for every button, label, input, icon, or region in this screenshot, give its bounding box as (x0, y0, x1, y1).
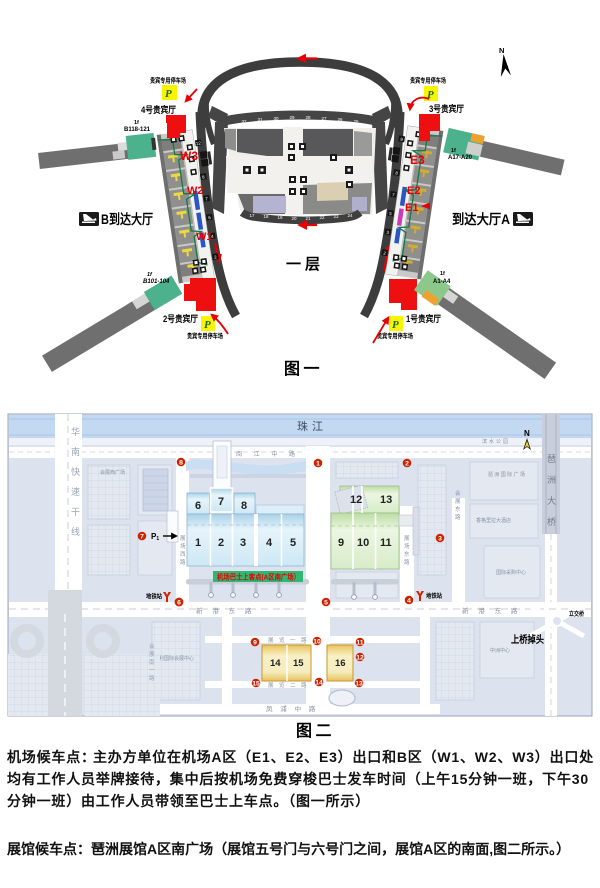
svg-text:26: 26 (337, 117, 343, 122)
svg-text:1f: 1f (147, 272, 153, 278)
svg-text:E2: E2 (407, 185, 420, 197)
svg-text:E1: E1 (405, 202, 418, 214)
svg-text:4号贵宾厅: 4号贵宾厅 (141, 104, 176, 115)
svg-text:B101-104: B101-104 (143, 279, 170, 285)
svg-text:A17-A20: A17-A20 (448, 155, 473, 161)
svg-text:1号贵宾厅: 1号贵宾厅 (406, 313, 441, 324)
svg-text:12: 12 (356, 655, 364, 662)
svg-text:1f: 1f (451, 148, 456, 154)
svg-text:13: 13 (355, 681, 363, 688)
svg-text:8: 8 (179, 460, 183, 467)
svg-text:22: 22 (319, 215, 325, 220)
svg-text:25: 25 (353, 119, 359, 124)
svg-text:9: 9 (253, 640, 257, 647)
svg-text:W1: W1 (196, 231, 213, 243)
svg-text:一层: 一层 (286, 256, 324, 273)
svg-text:30: 30 (273, 116, 279, 121)
svg-text:23: 23 (333, 214, 339, 219)
svg-text:1f: 1f (134, 120, 139, 126)
svg-text:32: 32 (241, 119, 247, 124)
svg-text:贵宾专用停车场: 贵宾专用停车场 (377, 331, 413, 340)
svg-text:11: 11 (356, 640, 363, 647)
svg-text:到达大厅A: 到达大厅A (452, 211, 510, 227)
svg-text:E3: E3 (410, 153, 425, 167)
svg-text:10: 10 (313, 639, 321, 646)
svg-text:B到达大厅: B到达大厅 (101, 211, 153, 227)
svg-text:18: 18 (263, 214, 269, 219)
svg-text:N: N (499, 46, 504, 55)
svg-text:P: P (204, 319, 211, 331)
svg-text:17: 17 (249, 213, 255, 218)
svg-text:3: 3 (438, 536, 442, 543)
svg-text:20: 20 (291, 216, 297, 221)
svg-text:7: 7 (140, 534, 144, 541)
svg-text:2号贵宾厅: 2号贵宾厅 (163, 313, 198, 324)
svg-text:图一: 图一 (284, 360, 323, 378)
svg-text:贵宾专用停车场: 贵宾专用停车场 (187, 331, 223, 340)
svg-text:19: 19 (277, 215, 283, 220)
svg-text:W3: W3 (180, 149, 198, 163)
svg-text:15: 15 (252, 681, 260, 688)
svg-text:3号贵宾厅: 3号贵宾厅 (429, 103, 464, 114)
svg-text:B118-121: B118-121 (124, 127, 151, 133)
svg-text:A1-A4: A1-A4 (433, 279, 451, 285)
svg-text:贵宾专用停车场: 贵宾专用停车场 (410, 76, 446, 85)
svg-text:P: P (392, 319, 399, 331)
svg-text:贵宾专用停车场: 贵宾专用停车场 (150, 76, 186, 85)
svg-text:4: 4 (407, 598, 411, 605)
svg-text:1f: 1f (440, 271, 445, 277)
svg-text:1: 1 (316, 461, 320, 468)
svg-text:14: 14 (315, 680, 323, 687)
svg-text:24: 24 (347, 213, 353, 218)
svg-text:31: 31 (257, 117, 263, 122)
svg-text:29: 29 (289, 115, 295, 120)
svg-text:27: 27 (321, 116, 327, 121)
svg-text:21: 21 (305, 216, 311, 221)
svg-text:28: 28 (305, 115, 311, 120)
svg-text:5: 5 (324, 600, 328, 607)
svg-text:2: 2 (405, 461, 409, 468)
svg-text:6: 6 (177, 600, 181, 607)
svg-text:W2: W2 (187, 185, 204, 197)
svg-text:P: P (165, 88, 172, 100)
